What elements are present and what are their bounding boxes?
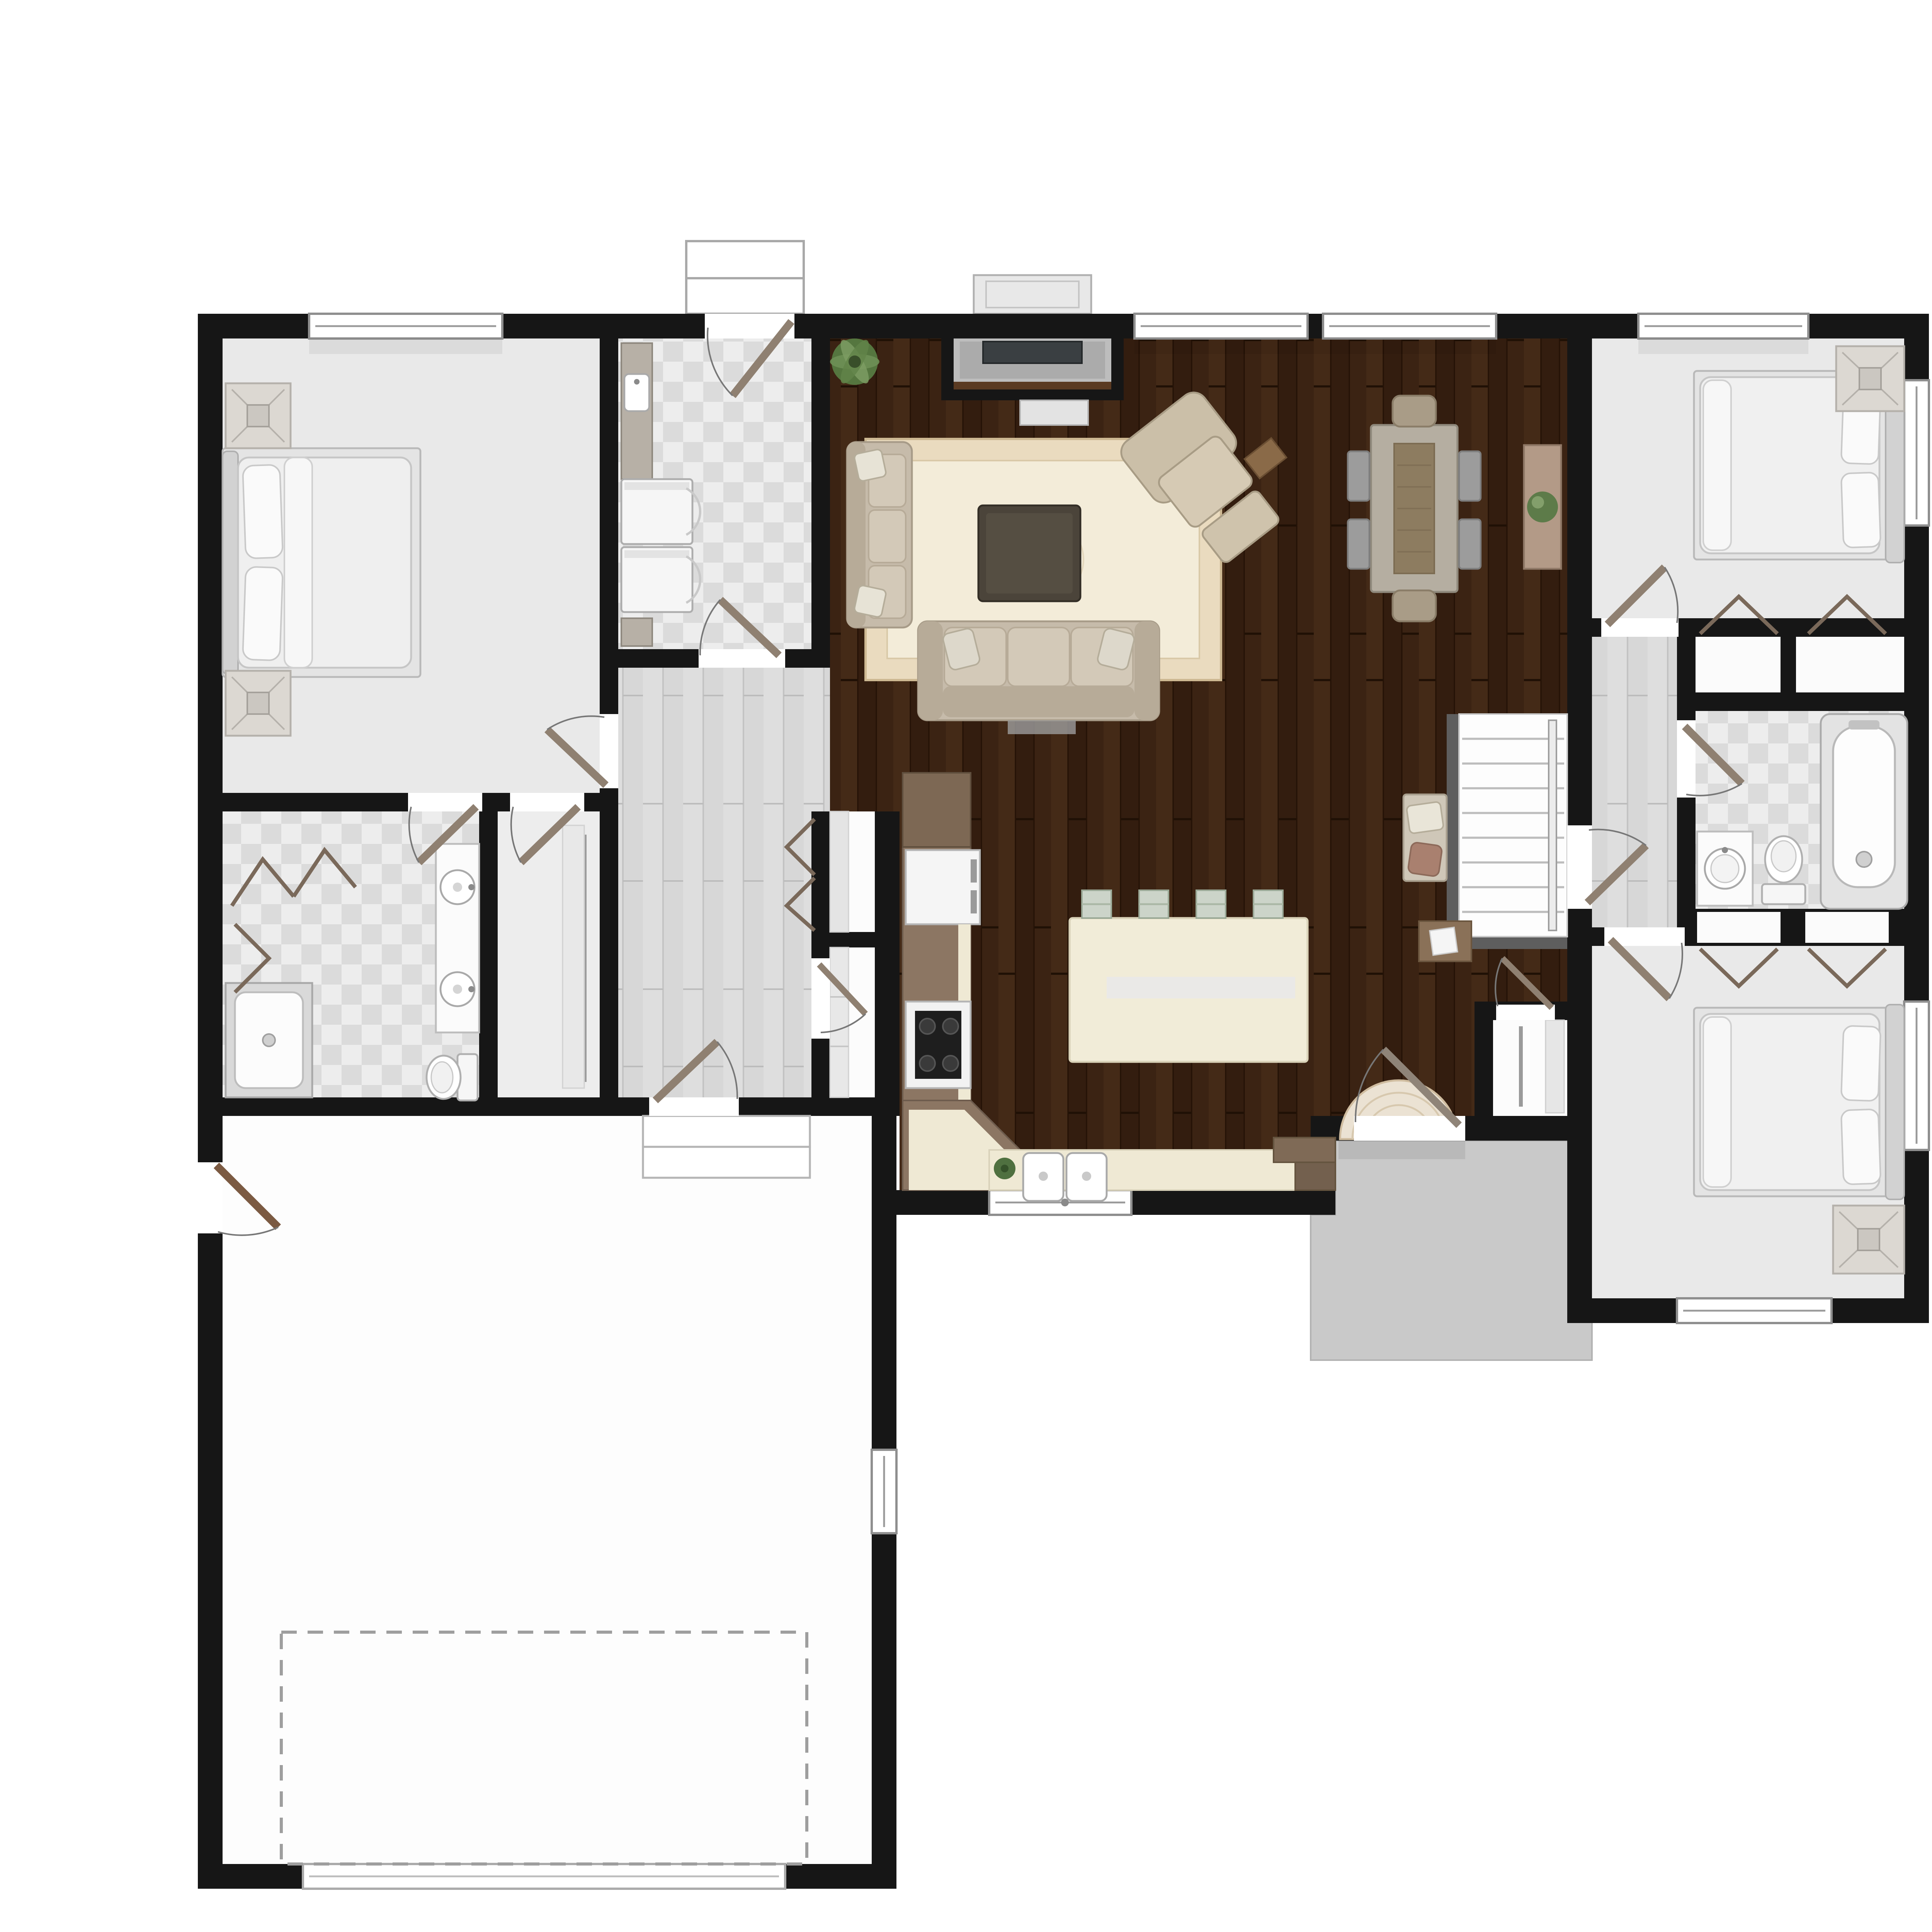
sofa-cushion-2 (1008, 628, 1070, 686)
shadow-window-living (1134, 338, 1496, 354)
laundry-counter (621, 618, 652, 646)
wing-hall-plank-floor (1592, 637, 1677, 946)
garage-step-upper (643, 1116, 810, 1147)
burner-3 (920, 1056, 935, 1071)
winghall-door-gap (1567, 825, 1592, 909)
kitchen-upper-cabinet (903, 773, 971, 847)
bed3-pillow-1 (1841, 1026, 1881, 1101)
master-headboard (223, 451, 238, 674)
entry-closet-door-gap (1496, 1005, 1555, 1020)
stair-rail (1549, 720, 1556, 930)
bath2-sink-inner (1711, 855, 1739, 883)
bar-step-upper (1274, 1138, 1335, 1162)
master-pillow-2 (243, 566, 283, 660)
island-band (1107, 977, 1295, 998)
bed2-duvet-fold (1703, 380, 1731, 550)
stair-stringer-left (1447, 714, 1459, 949)
burner-4 (943, 1056, 958, 1071)
bed2-pillow-2 (1841, 472, 1881, 548)
coat-closet-shelf (830, 811, 849, 932)
bed3-pillow-2 (1841, 1109, 1881, 1184)
fridge (906, 850, 980, 924)
pantry-shelf (830, 947, 849, 1097)
master-toilet-seat (431, 1062, 453, 1093)
bench-pillow-rose (1408, 842, 1442, 877)
back-stoop-upper (686, 241, 804, 278)
front-porch-concrete (1311, 1141, 1592, 1360)
bar-step-lower (1295, 1162, 1335, 1190)
wall-leftwing-bottom (198, 1097, 618, 1116)
wall-bath-wic-divider (479, 811, 498, 1116)
master-sink-1-drain (453, 883, 462, 892)
central-hall-plank-floor (618, 668, 830, 1097)
tv-console (1020, 400, 1088, 425)
wall-hall-closet (811, 811, 830, 1097)
garage-hall-door-gap (649, 1097, 739, 1116)
sink-drain-left (1039, 1172, 1048, 1181)
bed3-headboard (1886, 1005, 1904, 1199)
dining-chair-head-top (1393, 396, 1436, 427)
sofa-arm-right (1134, 621, 1159, 720)
floor-plan-svg (0, 0, 1932, 1932)
loveseat-pillow-top (854, 449, 886, 481)
wall-closet-row-bottom (1677, 692, 1929, 711)
loveseat-pillow-bottom (854, 585, 886, 617)
wall-closet-pantry-divider (830, 932, 875, 947)
fridge-handle-2 (971, 890, 977, 913)
fireplace-lip (954, 382, 1111, 389)
dining-chair-left-1 (1348, 451, 1369, 501)
tub-drain (1856, 852, 1872, 867)
washer-controls (624, 482, 689, 490)
layer-pantry-closet (830, 811, 849, 1097)
bedroom3-closet-pocket-l2 (1697, 912, 1781, 943)
burner-2 (943, 1019, 958, 1034)
coffee-table-top (986, 513, 1073, 594)
garage-floor (223, 1116, 872, 1864)
master-pillow-1 (243, 464, 283, 558)
hall-desk-paper (1430, 927, 1458, 955)
dining-chair-right-2 (1459, 519, 1481, 569)
counter-plant-center (1001, 1165, 1009, 1172)
garage-step-lower (643, 1147, 810, 1178)
tub-faucet (1849, 720, 1879, 730)
sofa-back (943, 686, 1134, 717)
wall-pantry-right (875, 811, 900, 1116)
sideboard-plant (1527, 492, 1558, 522)
floor-plan-page (0, 0, 1932, 1932)
shadow-window-master (309, 338, 502, 354)
sofa-arm-left (918, 621, 943, 720)
wall-closet-row-divider (1781, 637, 1796, 692)
living-plant-center (849, 355, 861, 368)
shower-drain (263, 1034, 275, 1046)
dining-chair-left-2 (1348, 519, 1369, 569)
sideboard-plant-highlight (1532, 496, 1544, 509)
burner-1 (920, 1019, 935, 1034)
entry-closet-shelf (1546, 1020, 1564, 1113)
bed3-duvet-fold (1703, 1017, 1731, 1187)
bed3-ns-lamp (1858, 1229, 1879, 1250)
sink-faucet (1061, 1199, 1069, 1206)
loveseat-cushion-2 (869, 510, 906, 563)
tv-screen (983, 342, 1082, 363)
bath2-faucet (1722, 847, 1728, 853)
ns2-lamp (247, 692, 269, 714)
fridge-handle-1 (971, 859, 977, 883)
bath2-toilet-tank (1762, 884, 1805, 904)
master-duvet-fold (284, 457, 312, 668)
master-sink-2-drain (453, 985, 462, 994)
bath2-toilet-seat (1771, 841, 1796, 872)
dining-chair-head-bottom (1393, 590, 1436, 621)
bench-pillow-plaid (1406, 801, 1444, 834)
wic-shelf (563, 825, 584, 1088)
wall-wic-hall (600, 793, 618, 1116)
wall-laundry-living (811, 338, 830, 668)
master-sink-1-faucet (468, 884, 474, 890)
sofa-base-shadow (1008, 720, 1076, 734)
shadow-window-bed2 (1638, 338, 1808, 354)
sink-drain-right (1082, 1172, 1091, 1181)
ns1-lamp (247, 405, 269, 427)
dryer-controls (624, 550, 689, 558)
shadow-porch-door (1338, 1141, 1465, 1159)
back-stoop-lower (686, 278, 804, 314)
layer-bedroom2-furniture (1694, 346, 1904, 563)
bedroom3-closet-pocket-r2 (1805, 912, 1889, 943)
laundry-sink-faucet (634, 379, 639, 384)
master-sink-2-faucet (468, 986, 474, 992)
dining-chair-right-1 (1459, 451, 1481, 501)
bed2-ns-lamp (1859, 368, 1881, 389)
